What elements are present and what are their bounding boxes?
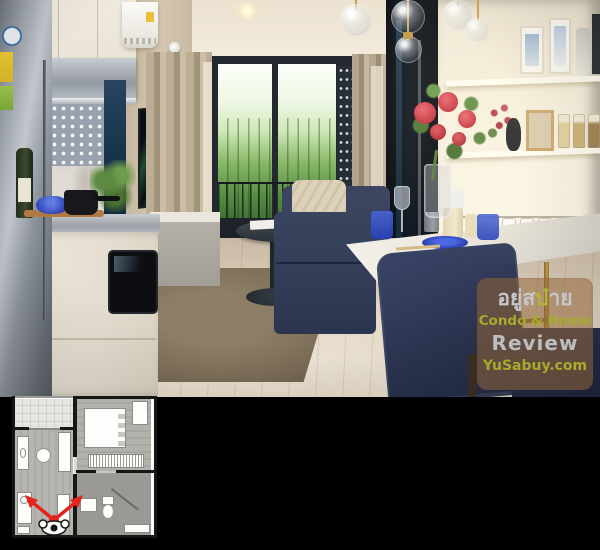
rose <box>452 132 466 146</box>
rose <box>458 110 476 128</box>
rose <box>438 92 458 112</box>
rose <box>430 124 446 140</box>
picture-frame-art <box>554 26 566 66</box>
camera-viewpoint-icon <box>39 520 69 535</box>
watermark-subtitle: Condo & Home <box>477 311 593 331</box>
tv-cabinet <box>150 222 220 286</box>
chair-leg <box>468 354 477 397</box>
energy-sticker <box>0 86 13 110</box>
wine-glass-stem <box>401 210 403 232</box>
pantry-jar <box>558 114 570 148</box>
pendant-stem <box>477 0 479 20</box>
camera-viewpoint-arrows <box>12 396 157 538</box>
dark-bottle-decor <box>592 14 600 74</box>
page: อยู่สบ๋าย Condo & Home Review YuSabuy.co… <box>0 0 600 550</box>
pantry-jar <box>588 114 600 148</box>
energy-sticker <box>2 26 22 46</box>
glass-globe-light <box>340 4 372 36</box>
black-vase <box>506 118 521 151</box>
black-pot <box>64 190 98 215</box>
flower-vase <box>424 164 452 218</box>
condo-interior-photo: อยู่สบ๋าย Condo & Home Review YuSabuy.co… <box>0 0 600 397</box>
pillar-candle <box>465 214 477 238</box>
glass-globe-light <box>391 0 425 34</box>
pot-handle <box>94 196 120 201</box>
gold-frame <box>526 110 554 151</box>
blue-tumbler <box>477 214 499 240</box>
unit-floor-plan <box>12 396 157 538</box>
ac-sticker <box>146 12 154 22</box>
wine-label <box>18 178 31 202</box>
brass-fitting <box>403 32 413 39</box>
tv-cabinet-top <box>150 212 220 222</box>
blue-tumbler <box>371 211 393 239</box>
sofa-seat <box>274 212 376 334</box>
wine-glass <box>394 186 410 210</box>
hourglass-decor <box>576 28 590 74</box>
watermark-review-label: Review <box>477 331 593 355</box>
recessed-downlight <box>232 2 262 20</box>
glass-globe-light <box>465 18 489 42</box>
pantry-jar <box>573 114 585 148</box>
sofa-cushion-seam <box>276 262 374 264</box>
fridge-handle <box>43 60 46 320</box>
energy-sticker <box>0 52 13 82</box>
mosaic-glints <box>50 104 104 166</box>
ac-louver <box>124 38 156 44</box>
rose <box>414 102 436 124</box>
picture-frame-art <box>525 34 539 66</box>
glass-globe-light <box>395 36 422 63</box>
microwave-glint <box>114 256 152 272</box>
smile-accent: บ๋ <box>535 286 548 310</box>
watermark-site-url: YuSabuy.com <box>477 355 593 377</box>
watermark-thai-title: อยู่สบ๋าย <box>477 285 593 311</box>
yusabuy-watermark: อยู่สบ๋าย Condo & Home Review YuSabuy.co… <box>477 278 593 390</box>
